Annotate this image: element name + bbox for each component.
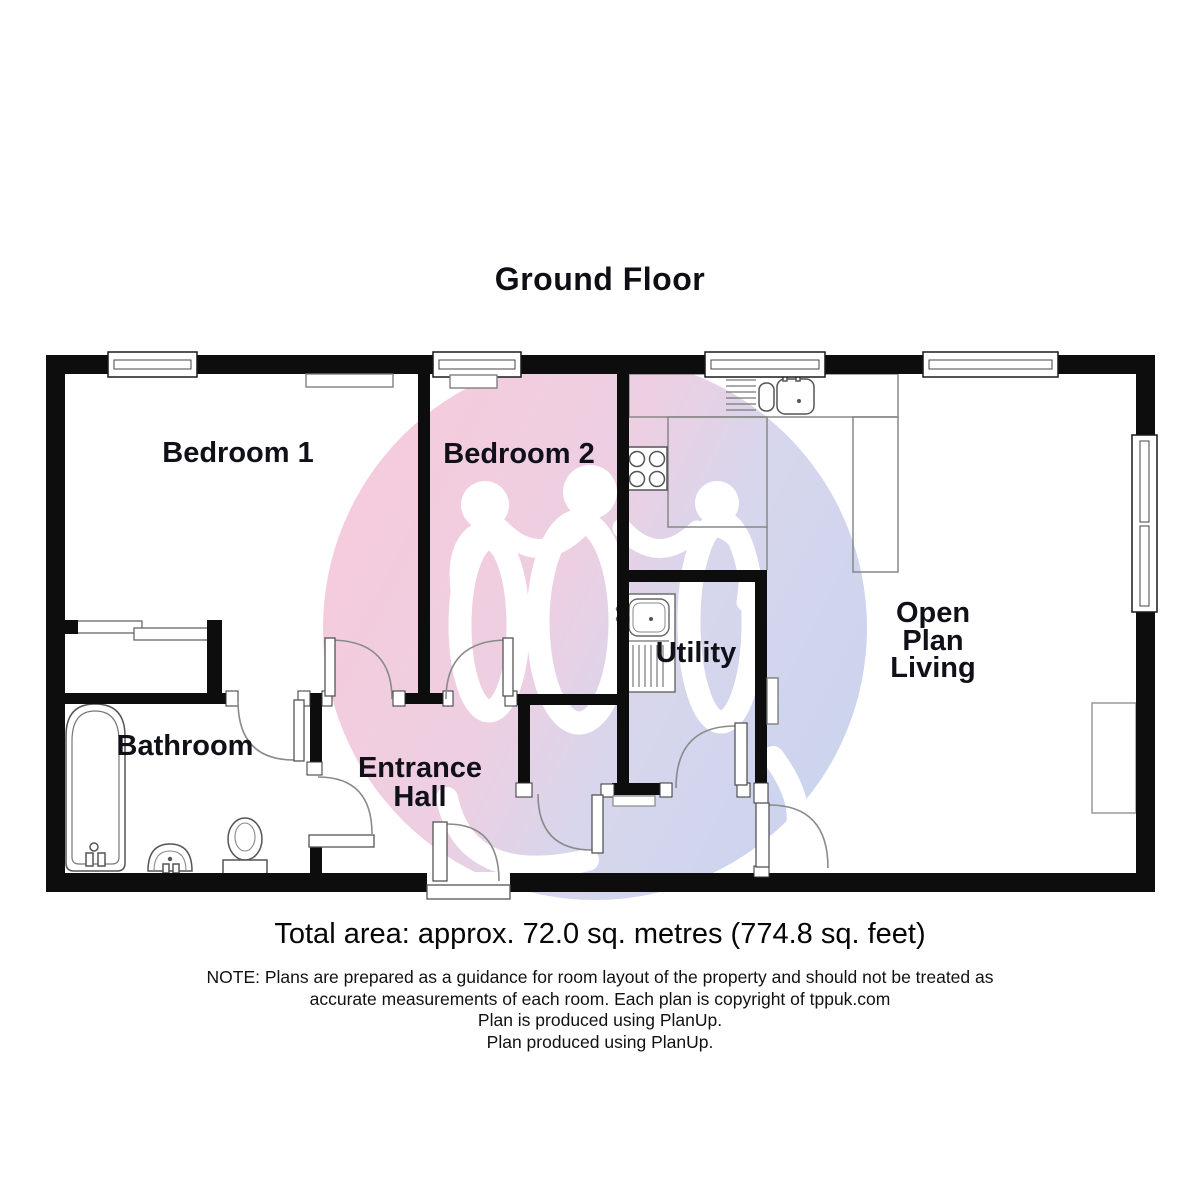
radiator-hall: [767, 678, 778, 724]
svg-text:Hall: Hall: [393, 781, 446, 813]
door-bathroom-side: [309, 777, 374, 847]
label-utility: Utility: [656, 637, 737, 669]
front-door-threshold: [427, 885, 510, 899]
wall-utility-top: [617, 570, 767, 582]
wall-wardrobe-right: [207, 620, 222, 698]
cupboard-threshold: [613, 796, 655, 806]
footer: Total area: approx. 72.0 sq. metres (774…: [0, 918, 1200, 1053]
svg-text:Entrance: Entrance: [358, 752, 482, 784]
toilet: [223, 818, 267, 874]
wall-bedroom-divider: [418, 374, 430, 694]
living-room-cabinet: [1092, 703, 1136, 813]
wall-utility-bottom: [612, 783, 660, 795]
note-line-3: Plan is produced using PlanUp.: [0, 1010, 1200, 1032]
total-area-text: Total area: approx. 72.0 sq. metres (774…: [0, 918, 1200, 951]
wall-cupboard-left: [518, 705, 530, 783]
note-line-1: NOTE: Plans are prepared as a guidance f…: [0, 967, 1200, 989]
window-living-top: [923, 352, 1058, 377]
wall-wardrobe-corner: [63, 620, 78, 634]
label-open-plan-living: Open Plan Living: [890, 597, 975, 684]
label-bathroom: Bathroom: [117, 730, 254, 762]
wall-utility-right: [755, 570, 767, 783]
kitchen-counter-right-run: [853, 417, 898, 572]
label-bedroom2: Bedroom 2: [443, 438, 594, 470]
note-line-4: Plan produced using PlanUp.: [0, 1032, 1200, 1054]
wall-bathroom-right-lower: [310, 847, 322, 873]
radiator-bedroom2: [450, 375, 497, 388]
floorplan-page: Ground Floor: [0, 0, 1200, 1200]
label-bedroom1: Bedroom 1: [162, 437, 313, 469]
wardrobe-sliding-doors: [67, 621, 210, 640]
svg-text:Living: Living: [890, 652, 975, 684]
wall-bottom: [46, 873, 1155, 892]
window-kitchen: [705, 352, 825, 377]
radiator-bedroom1: [306, 374, 393, 387]
wall-left: [46, 355, 65, 892]
note-line-2: accurate measurements of each room. Each…: [0, 989, 1200, 1011]
window-living-right: [1132, 435, 1157, 612]
window-bedroom2: [433, 352, 521, 377]
wall-hall-top: [517, 694, 622, 705]
wall-bathroom-right-upper: [310, 693, 322, 762]
basin: [148, 844, 192, 873]
window-bedroom1: [108, 352, 197, 377]
hob: [627, 447, 667, 490]
